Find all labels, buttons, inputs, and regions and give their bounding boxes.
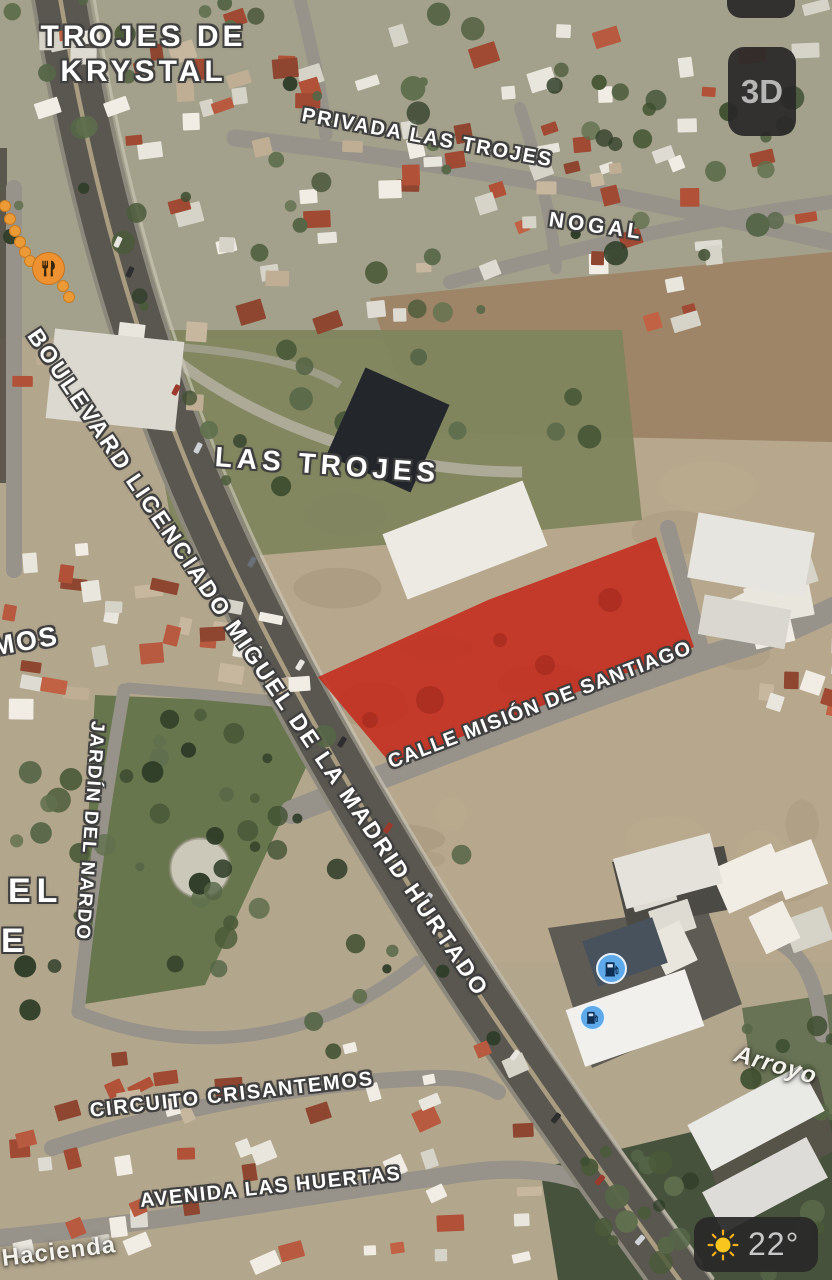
satellite-map-view[interactable]: TROJES DE KRYSTAL PRIVADA LAS TROJES NOG… (0, 0, 832, 1280)
route-dot (63, 291, 75, 303)
area-label-partial-el: EL (8, 872, 63, 911)
satellite-imagery[interactable] (0, 0, 832, 1280)
partial-map-control-button[interactable] (727, 0, 795, 18)
route-dot (4, 213, 16, 225)
3d-view-button[interactable]: 3D (728, 47, 796, 136)
fuel-station-icon[interactable] (579, 1004, 606, 1031)
sun-icon (705, 1227, 741, 1263)
restaurant-icon[interactable] (32, 252, 65, 285)
3d-view-label: 3D (741, 73, 783, 111)
area-label-trojes-de-krystal: TROJES DE KRYSTAL (36, 20, 251, 89)
area-label-partial-e: E (1, 922, 26, 961)
temperature-value: 22° (748, 1226, 799, 1263)
weather-widget[interactable]: 22° (694, 1217, 818, 1272)
fuel-station-icon[interactable] (596, 953, 627, 984)
